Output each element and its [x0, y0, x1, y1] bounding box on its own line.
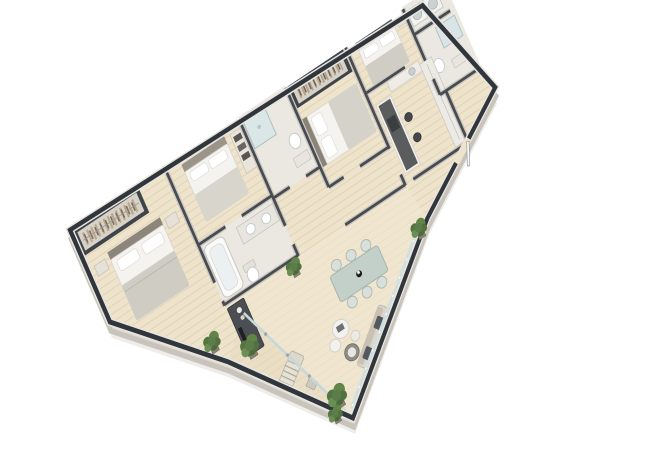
door-leaf: [467, 141, 470, 166]
floor-plan-render: [0, 0, 655, 449]
entry-door: [467, 141, 470, 166]
apartment-plan: [70, 0, 574, 449]
floor-plan-3d: [0, 0, 655, 449]
